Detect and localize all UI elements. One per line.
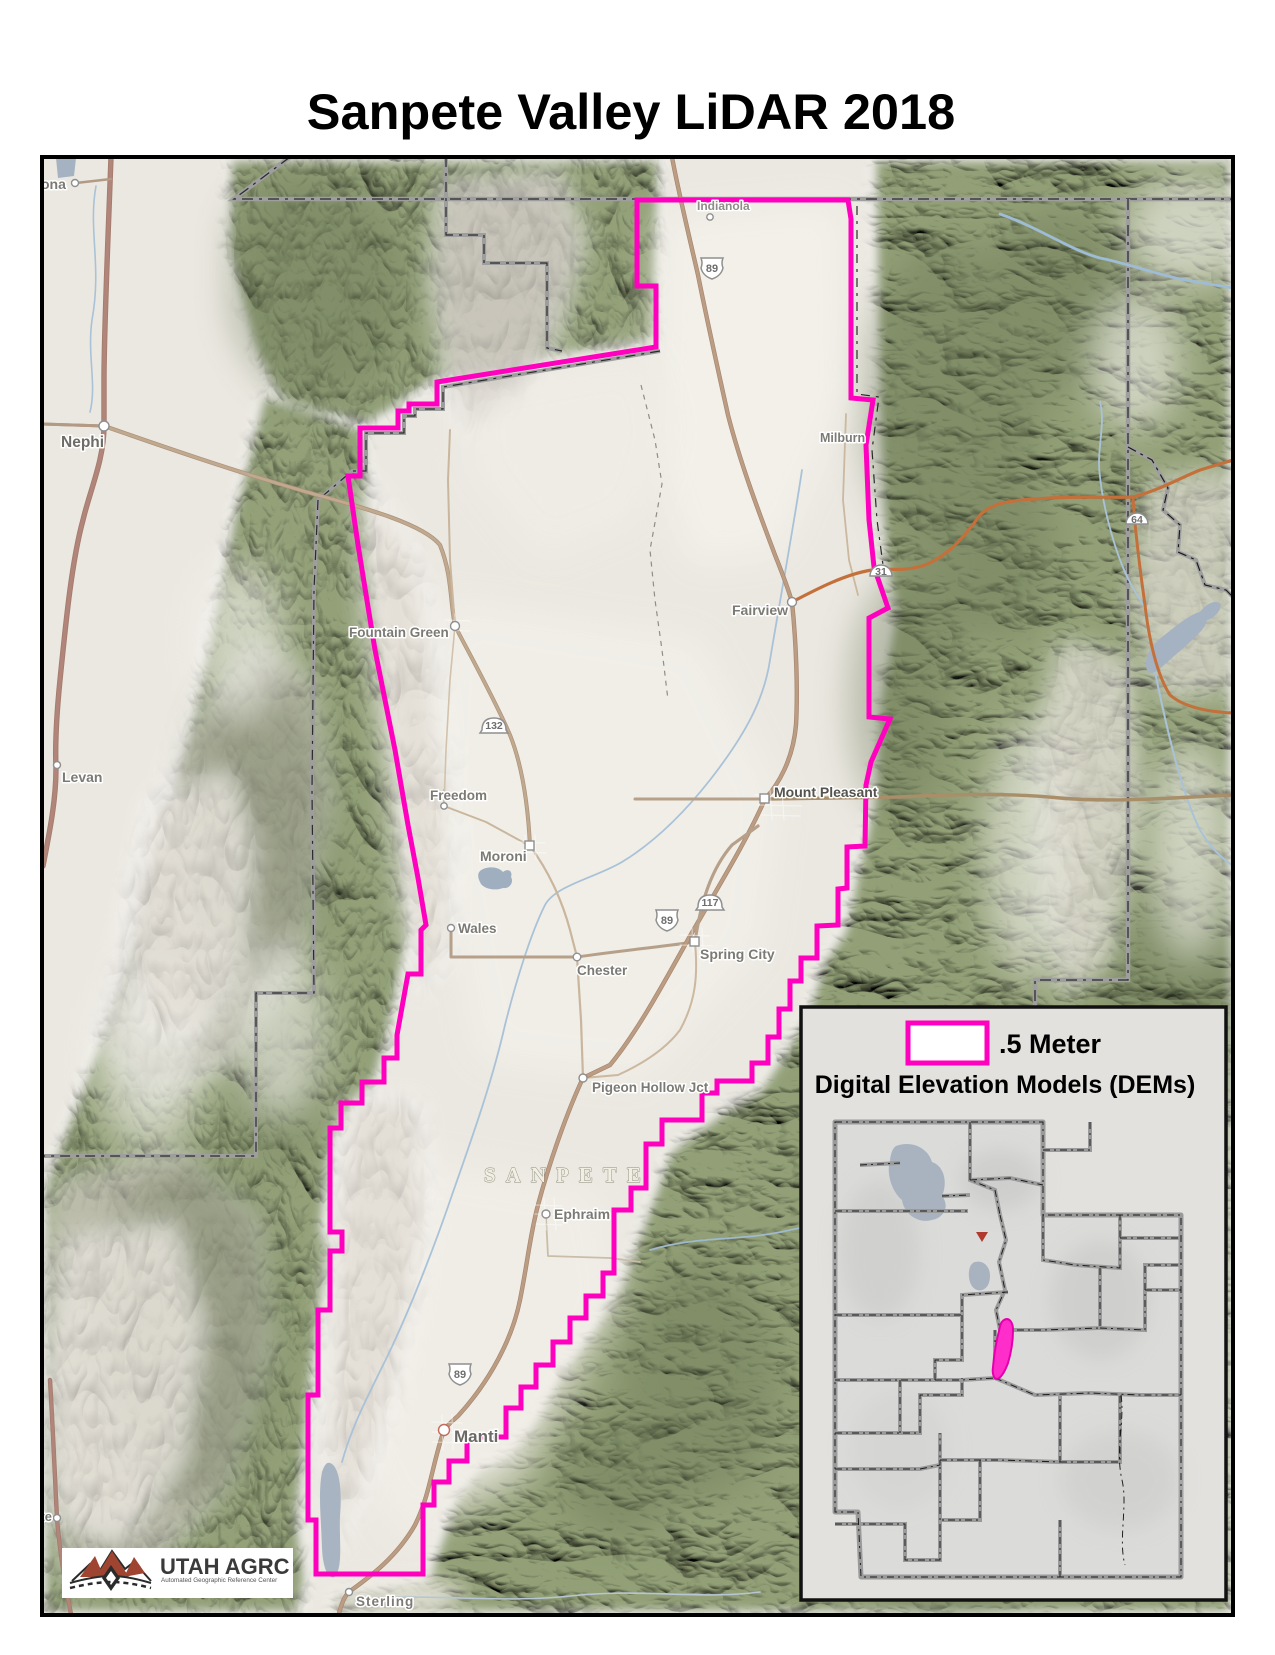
svg-text:Wales: Wales (458, 921, 497, 936)
svg-text:Freedom: Freedom (430, 788, 487, 803)
svg-text:64: 64 (1131, 514, 1143, 526)
svg-text:Spring City: Spring City (700, 946, 775, 962)
svg-text:Digital Elevation Models (DEMs: Digital Elevation Models (DEMs) (815, 1071, 1196, 1099)
svg-text:ona: ona (41, 176, 66, 192)
svg-text:Indianola: Indianola (697, 199, 750, 213)
svg-text:89: 89 (454, 1369, 466, 1381)
svg-text:Chester: Chester (577, 963, 628, 978)
svg-text:SANPETE: SANPETE (484, 1163, 651, 1187)
svg-text:Levan: Levan (62, 769, 102, 785)
svg-text:Milburn: Milburn (820, 431, 865, 445)
svg-text:.5 Meter: .5 Meter (999, 1029, 1102, 1059)
svg-text:Manti: Manti (454, 1427, 498, 1446)
svg-text:Nephi: Nephi (61, 434, 104, 451)
svg-text:31: 31 (875, 566, 887, 578)
svg-text:Pigeon Hollow Jct: Pigeon Hollow Jct (592, 1080, 709, 1095)
svg-text:89: 89 (706, 263, 718, 275)
svg-text:117: 117 (702, 897, 719, 909)
svg-text:132: 132 (485, 720, 503, 732)
svg-text:Moroni: Moroni (480, 848, 527, 864)
svg-text:Ephraim: Ephraim (554, 1206, 610, 1222)
svg-text:Automated Geographic Reference: Automated Geographic Reference Center (161, 1577, 277, 1584)
svg-text:Fairview: Fairview (732, 602, 788, 618)
svg-text:UTAH AGRC: UTAH AGRC (160, 1554, 290, 1579)
svg-text:Mount Pleasant: Mount Pleasant (774, 784, 878, 800)
svg-text:Fountain Green: Fountain Green (349, 625, 449, 640)
svg-text:89: 89 (661, 915, 673, 927)
svg-text:Sterling: Sterling (356, 1594, 414, 1609)
svg-text:Sanpete Valley LiDAR 2018: Sanpete Valley LiDAR 2018 (307, 83, 955, 140)
